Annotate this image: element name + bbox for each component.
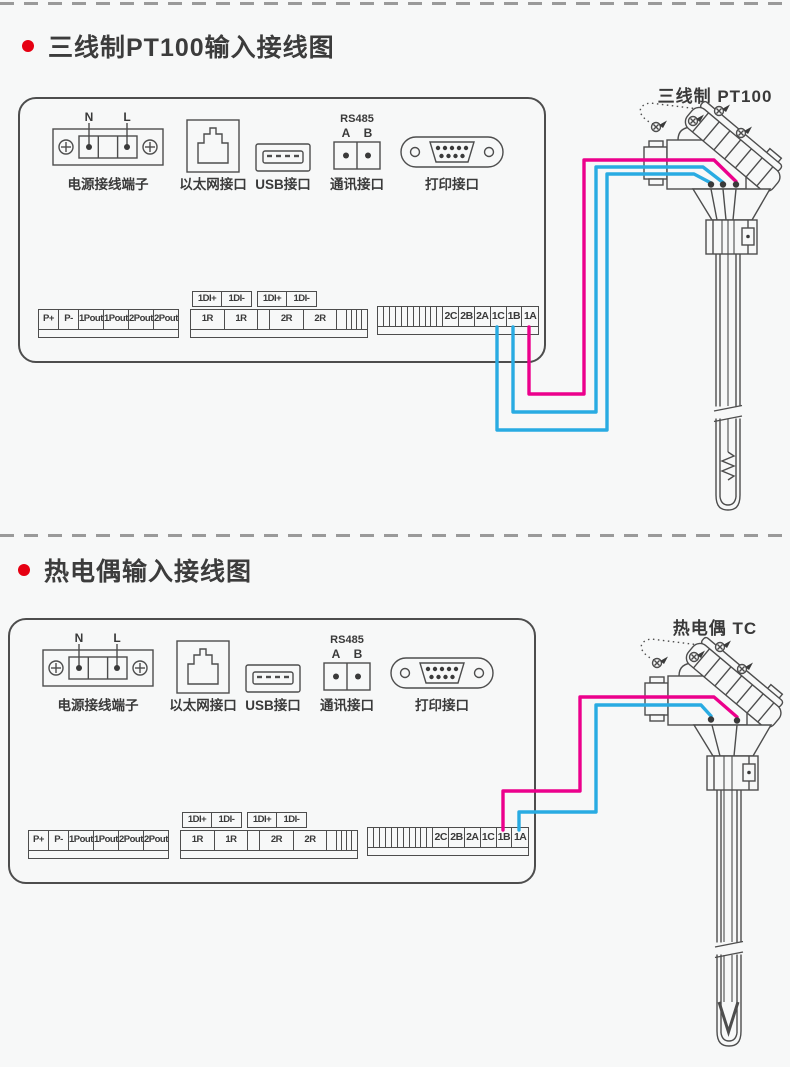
terminal-cell: 2C (433, 828, 449, 847)
terminal-cell: 2Pout- (154, 310, 178, 329)
printer-port: 打印接口 (387, 626, 497, 714)
svg-text:B: B (354, 647, 363, 661)
printer-port-label: 打印接口 (415, 697, 469, 714)
terminal-cell (362, 310, 367, 329)
terminal-cell: 1R (191, 310, 225, 329)
terminal-cell: 1B (507, 307, 523, 326)
terminal-cell: 1C (481, 828, 497, 847)
svg-text:A: A (332, 647, 341, 661)
rs485-comm-port: RS485 A B 通讯接口 (307, 626, 387, 714)
terminal-cell: 1Pout+ (69, 831, 94, 850)
terminal-cell: 1Pout+ (79, 310, 104, 329)
terminal-cell: 2Pout+ (129, 310, 154, 329)
di-terminal-box: 1DI+ 1DI- (257, 291, 317, 307)
terminal-cell: 1Pout- (104, 310, 129, 329)
terminal-cell: 2R (260, 831, 294, 850)
wire-pink-1a (529, 160, 736, 394)
strip-band (181, 850, 357, 858)
svg-text:L: L (113, 632, 120, 645)
top-dashed-divider (0, 2, 790, 5)
terminal-cell: 1DI+ (248, 813, 277, 827)
power-terminal-icon: N L (42, 632, 154, 694)
terminal-cell (258, 310, 270, 329)
section-title: 三线制PT100输入接线图 (48, 28, 335, 64)
terminal-cell: 2R (294, 831, 328, 850)
terminal-cell: 1C (491, 307, 507, 326)
terminal-cell: 1DI- (287, 292, 316, 306)
terminal-cell: P- (59, 310, 79, 329)
rs485-comm-port: RS485 A B 通讯接口 (317, 105, 397, 193)
terminal-cell: 2Pout- (144, 831, 168, 850)
terminal-cell (327, 831, 337, 850)
terminal-cell (352, 831, 357, 850)
terminal-cell: 2B (459, 307, 475, 326)
power-terminal-label: 电源接线端子 (68, 176, 149, 193)
terminal-cell: 1R (181, 831, 215, 850)
printer-port-icon (400, 131, 504, 173)
section-title: 热电偶输入接线图 (44, 552, 252, 588)
signal-input-terminal-strip: 2C 2B 2A 1C 1B 1A (367, 827, 529, 856)
terminal-cell: 1A (512, 828, 528, 847)
terminal-cell: 1B (497, 828, 513, 847)
svg-text:B: B (364, 126, 373, 140)
terminal-cell: 1R (225, 310, 259, 329)
printer-port-icon (390, 652, 494, 694)
power-terminal: N L 电源接线端子 (50, 105, 166, 193)
wire-pink-1b (503, 697, 737, 830)
section-pt100-title-row: 三线制PT100输入接线图 (22, 28, 335, 64)
printer-port: 打印接口 (397, 105, 507, 193)
terminal-cell: 2R (304, 310, 338, 329)
terminal-cell: 2A (475, 307, 491, 326)
ethernet-port-label: 以太网接口 (169, 697, 237, 714)
svg-text:L: L (123, 111, 130, 124)
usb-port: USB接口 (243, 105, 323, 193)
terminal-cell: 1Pout- (94, 831, 119, 850)
di-terminal-box: 1DI+ 1DI- (192, 291, 252, 307)
power-terminal-label: 电源接线端子 (58, 697, 139, 714)
terminal-cell (337, 310, 347, 329)
terminal-cell (248, 831, 260, 850)
terminal-cell: 2B (449, 828, 465, 847)
svg-text:N: N (85, 111, 94, 124)
terminal-cell: 2C (443, 307, 459, 326)
rs485-port-icon: RS485 A B (333, 109, 381, 173)
relay-terminal-strip: 1R 1R 2R 2R (190, 309, 368, 338)
ethernet-port-label: 以太网接口 (179, 176, 247, 193)
strip-band (29, 850, 168, 858)
power-terminal: N L 电源接线端子 (40, 626, 156, 714)
usb-port-label: USB接口 (255, 176, 311, 193)
section-tc-title-row: 热电偶输入接线图 (18, 552, 252, 588)
tc-sensor-illustration (641, 631, 790, 1046)
terminal-cell: 1DI+ (258, 292, 287, 306)
device-rear-panel: N L 电源接线端子 以太网接口 (8, 618, 536, 884)
terminal-cell: 2Pout+ (119, 831, 144, 850)
di-terminal-box: 1DI+ 1DI- (182, 812, 242, 828)
relay-terminal-strip: 1R 1R 2R 2R (180, 830, 358, 859)
strip-band (39, 329, 178, 337)
terminal-cell: 1DI+ (183, 813, 212, 827)
tc-wires (503, 697, 740, 830)
terminal-cell: 1DI- (212, 813, 241, 827)
ethernet-port-icon (176, 640, 230, 694)
power-terminal-icon: N L (52, 111, 164, 173)
sensor-type-label: 热电偶 TC (645, 614, 785, 639)
pt100-sensor-illustration (640, 95, 790, 510)
comm-port-label: 通讯接口 (330, 176, 384, 193)
terminal-cell: 1DI+ (193, 292, 222, 306)
terminal-cell: 1DI- (277, 813, 306, 827)
terminal-cell: P+ (29, 831, 49, 850)
wiring-diagram-page: 三线制PT100输入接线图 N L 电源接线端子 (0, 0, 790, 1067)
terminal-cell: 2R (270, 310, 304, 329)
terminal-cell: P+ (39, 310, 59, 329)
svg-text:A: A (342, 126, 351, 140)
svg-text:RS485: RS485 (340, 113, 374, 125)
usb-port-icon (255, 143, 311, 173)
power-output-terminal-strip: P+ P- 1Pout+ 1Pout- 2Pout+ 2Pout- (28, 830, 169, 859)
svg-text:N: N (75, 632, 84, 645)
svg-text:RS485: RS485 (330, 634, 364, 646)
terminal-cell: P- (49, 831, 69, 850)
device-rear-panel: N L 电源接线端子 以太网接口 (18, 97, 546, 363)
printer-port-label: 打印接口 (425, 176, 479, 193)
rtd-element-symbol (722, 452, 734, 480)
tc-junction-symbol (719, 1002, 738, 1032)
sensor-type-label: 三线制 PT100 (640, 82, 790, 107)
signal-input-terminal-strip: 2C 2B 2A 1C 1B 1A (377, 306, 539, 335)
strip-band (368, 847, 528, 855)
comm-port-label: 通讯接口 (320, 697, 374, 714)
power-output-terminal-strip: P+ P- 1Pout+ 1Pout- 2Pout+ 2Pout- (38, 309, 179, 338)
terminal-cell: 1A (522, 307, 538, 326)
terminal-cell: 1DI- (222, 292, 251, 306)
red-bullet-icon (22, 40, 34, 52)
strip-band (191, 329, 367, 337)
strip-band (378, 326, 538, 334)
usb-port: USB接口 (233, 626, 313, 714)
di-terminal-box: 1DI+ 1DI- (247, 812, 307, 828)
terminal-cell: 2A (465, 828, 481, 847)
ethernet-port-icon (186, 119, 240, 173)
rs485-port-icon: RS485 A B (323, 630, 371, 694)
terminal-cell: 1R (215, 831, 249, 850)
usb-port-label: USB接口 (245, 697, 301, 714)
usb-port-icon (245, 664, 301, 694)
red-bullet-icon (18, 564, 30, 576)
section-dashed-divider (0, 534, 790, 537)
wire-blue-1a (519, 705, 711, 830)
